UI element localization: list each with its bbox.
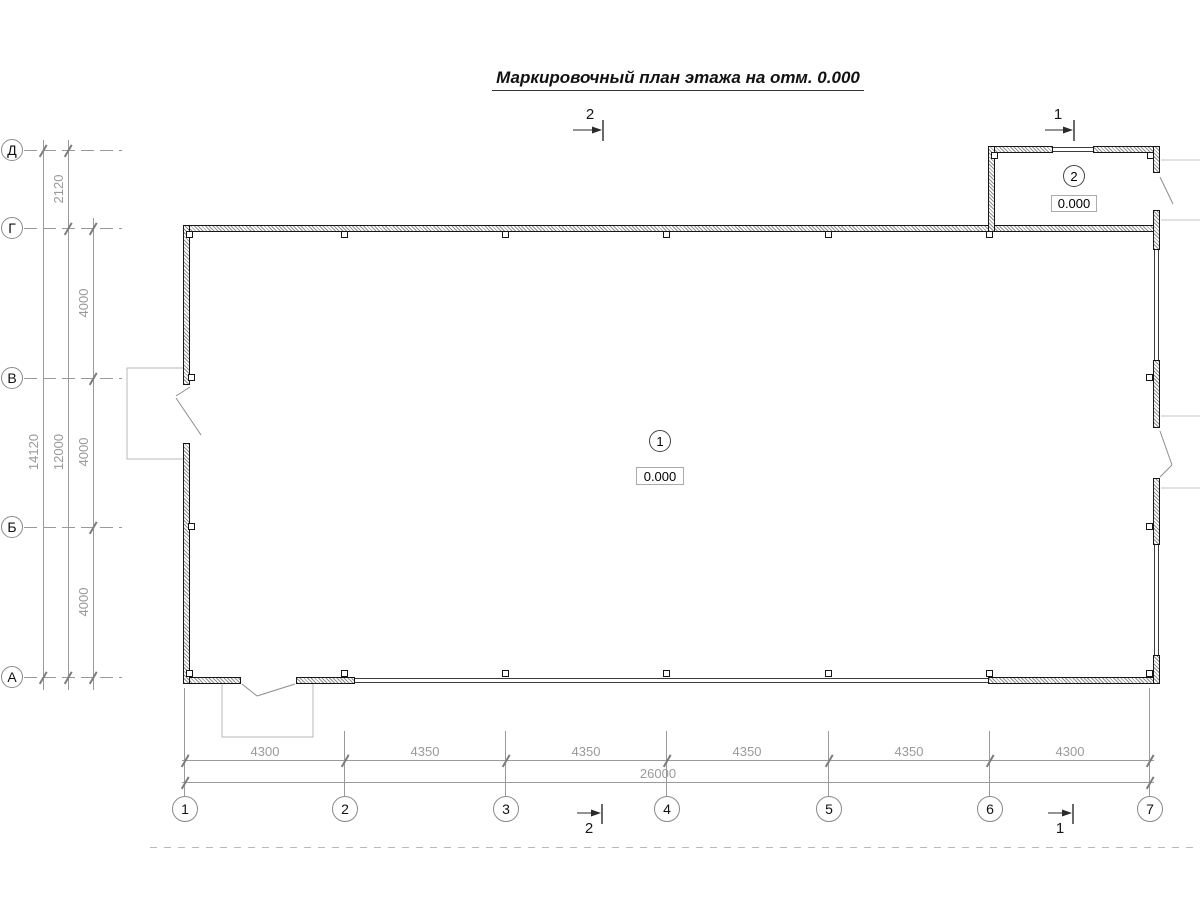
pilaster	[825, 670, 832, 677]
window-line-annex	[1053, 151, 1093, 152]
pilaster	[825, 231, 832, 238]
axis-label: 7	[1146, 801, 1154, 817]
left-dim-bay-text: 4000	[77, 263, 91, 343]
pilaster	[1146, 374, 1153, 381]
axis-bubble-2: 2	[332, 796, 358, 822]
pilaster	[186, 231, 193, 238]
elevation-value: 0.000	[644, 469, 677, 484]
wall-bottom-segment	[988, 677, 1160, 684]
section-number-bottom-2: 2	[581, 820, 597, 837]
pilaster	[663, 231, 670, 238]
window-line-bottom	[355, 682, 988, 683]
right-door-leaf	[1160, 431, 1172, 465]
axis-bubble-3: 3	[493, 796, 519, 822]
axis-bubble-6: 6	[977, 796, 1003, 822]
floor-plan-drawing: Маркировочный план этажа на отм. 0.000	[0, 0, 1200, 900]
axis-bubble-5: 5	[816, 796, 842, 822]
wall-left-segment	[183, 443, 190, 684]
window-line-right	[1154, 545, 1155, 655]
axis-label: Д	[7, 142, 16, 158]
left-dim-bay-text: 4000	[77, 412, 91, 492]
top-room-door-leaf	[1160, 177, 1173, 204]
window-line-annex	[1053, 147, 1093, 148]
pilaster	[991, 152, 998, 159]
axis-label: 6	[986, 801, 994, 817]
wall-top	[183, 225, 1160, 232]
left-dim-line-bays	[93, 218, 94, 690]
window-line-right	[1154, 250, 1155, 360]
bottom-dim-bay-text: 4300	[1030, 745, 1110, 759]
axis-label: 1	[181, 801, 189, 817]
section-number-top-1: 1	[1050, 106, 1066, 123]
left-dim-line-subtotal	[68, 140, 69, 690]
axis-line-d	[24, 150, 122, 151]
pilaster	[341, 670, 348, 677]
left-dim-line-overall	[43, 140, 44, 690]
bottom-dim-line-overall	[182, 782, 1154, 783]
axis-label: 5	[825, 801, 833, 817]
axis-label: 3	[502, 801, 510, 817]
bottom-dim-bay-text: 4350	[869, 745, 949, 759]
axis-label: В	[7, 370, 16, 386]
pilaster	[188, 374, 195, 381]
pilaster	[502, 670, 509, 677]
axis-bubble-7: 7	[1137, 796, 1163, 822]
wall-right-segment	[1153, 210, 1160, 250]
axis-bubble-v: В	[1, 367, 23, 389]
pilaster	[188, 523, 195, 530]
axis-line-g	[24, 228, 122, 229]
window-line-right	[1158, 250, 1159, 360]
axis-line-a	[24, 677, 122, 678]
pilaster	[986, 231, 993, 238]
frame-dashed-line	[150, 847, 1200, 848]
section-arrowhead-top-2	[592, 127, 602, 134]
annotation-lines-layer	[0, 0, 1200, 900]
axis-bubble-g: Г	[1, 217, 23, 239]
pilaster	[1147, 152, 1154, 159]
pilaster	[663, 670, 670, 677]
bottom-door-leaf	[257, 684, 295, 696]
section-arrowhead-bottom-2	[591, 810, 601, 817]
axis-bubble-a: А	[1, 666, 23, 688]
wall-bottom-segment	[296, 677, 355, 684]
wall-left-segment	[183, 225, 190, 385]
axis-label: Г	[8, 220, 16, 236]
wall-right-segment	[1153, 655, 1160, 684]
room-number-bubble: 2	[1063, 165, 1085, 187]
axis-bubble-b: Б	[1, 516, 23, 538]
bottom-dim-bay-text: 4350	[385, 745, 465, 759]
left-door-leaf	[176, 398, 201, 435]
pilaster	[1146, 670, 1153, 677]
room-number: 2	[1070, 169, 1077, 184]
wall-bottom-segment	[183, 677, 241, 684]
elevation-box: 0.000	[1051, 195, 1097, 212]
right-door-leaf	[1160, 465, 1172, 477]
bottom-porch-outline	[222, 684, 313, 737]
axis-bubble-1: 1	[172, 796, 198, 822]
section-number-bottom-1: 1	[1052, 820, 1068, 837]
room-number: 1	[656, 434, 663, 449]
left-dim-subtotal-text: 12000	[52, 412, 66, 492]
pilaster	[341, 231, 348, 238]
left-dim-topbay-text: 2120	[52, 149, 66, 229]
bottom-door-leaf	[242, 684, 257, 696]
left-dim-overall-text: 14120	[27, 412, 41, 492]
bottom-dim-bay-text: 4350	[546, 745, 626, 759]
axis-line-v	[24, 378, 122, 379]
wall-right-segment	[1153, 478, 1160, 545]
window-line-bottom	[355, 678, 988, 679]
bottom-dim-overall-text: 26000	[618, 767, 698, 781]
elevation-value: 0.000	[1058, 196, 1091, 211]
axis-label: А	[7, 669, 16, 685]
pilaster	[986, 670, 993, 677]
bottom-dim-bay-text: 4300	[225, 745, 305, 759]
left-door-leaf	[176, 387, 190, 396]
wall-right-segment	[1153, 360, 1160, 428]
drawing-title: Маркировочный план этажа на отм. 0.000	[492, 68, 864, 91]
section-number-top-2: 2	[582, 106, 598, 123]
pilaster	[186, 670, 193, 677]
section-arrowhead-top-1	[1063, 127, 1073, 134]
annex-wall-right-segment	[1153, 146, 1160, 173]
section-arrowhead-bottom-1	[1062, 810, 1072, 817]
axis-label: Б	[7, 519, 16, 535]
axis-bubble-d: Д	[1, 139, 23, 161]
axis-label: 4	[663, 801, 671, 817]
window-line-right	[1158, 545, 1159, 655]
elevation-box: 0.000	[636, 467, 684, 485]
pilaster	[1146, 523, 1153, 530]
axis-label: 2	[341, 801, 349, 817]
axis-line-b	[24, 527, 122, 528]
left-dim-bay-text: 4000	[77, 562, 91, 642]
left-porch-outline	[127, 368, 183, 459]
room-number-bubble: 1	[649, 430, 671, 452]
bottom-dim-bay-text: 4350	[707, 745, 787, 759]
pilaster	[502, 231, 509, 238]
axis-bubble-4: 4	[654, 796, 680, 822]
